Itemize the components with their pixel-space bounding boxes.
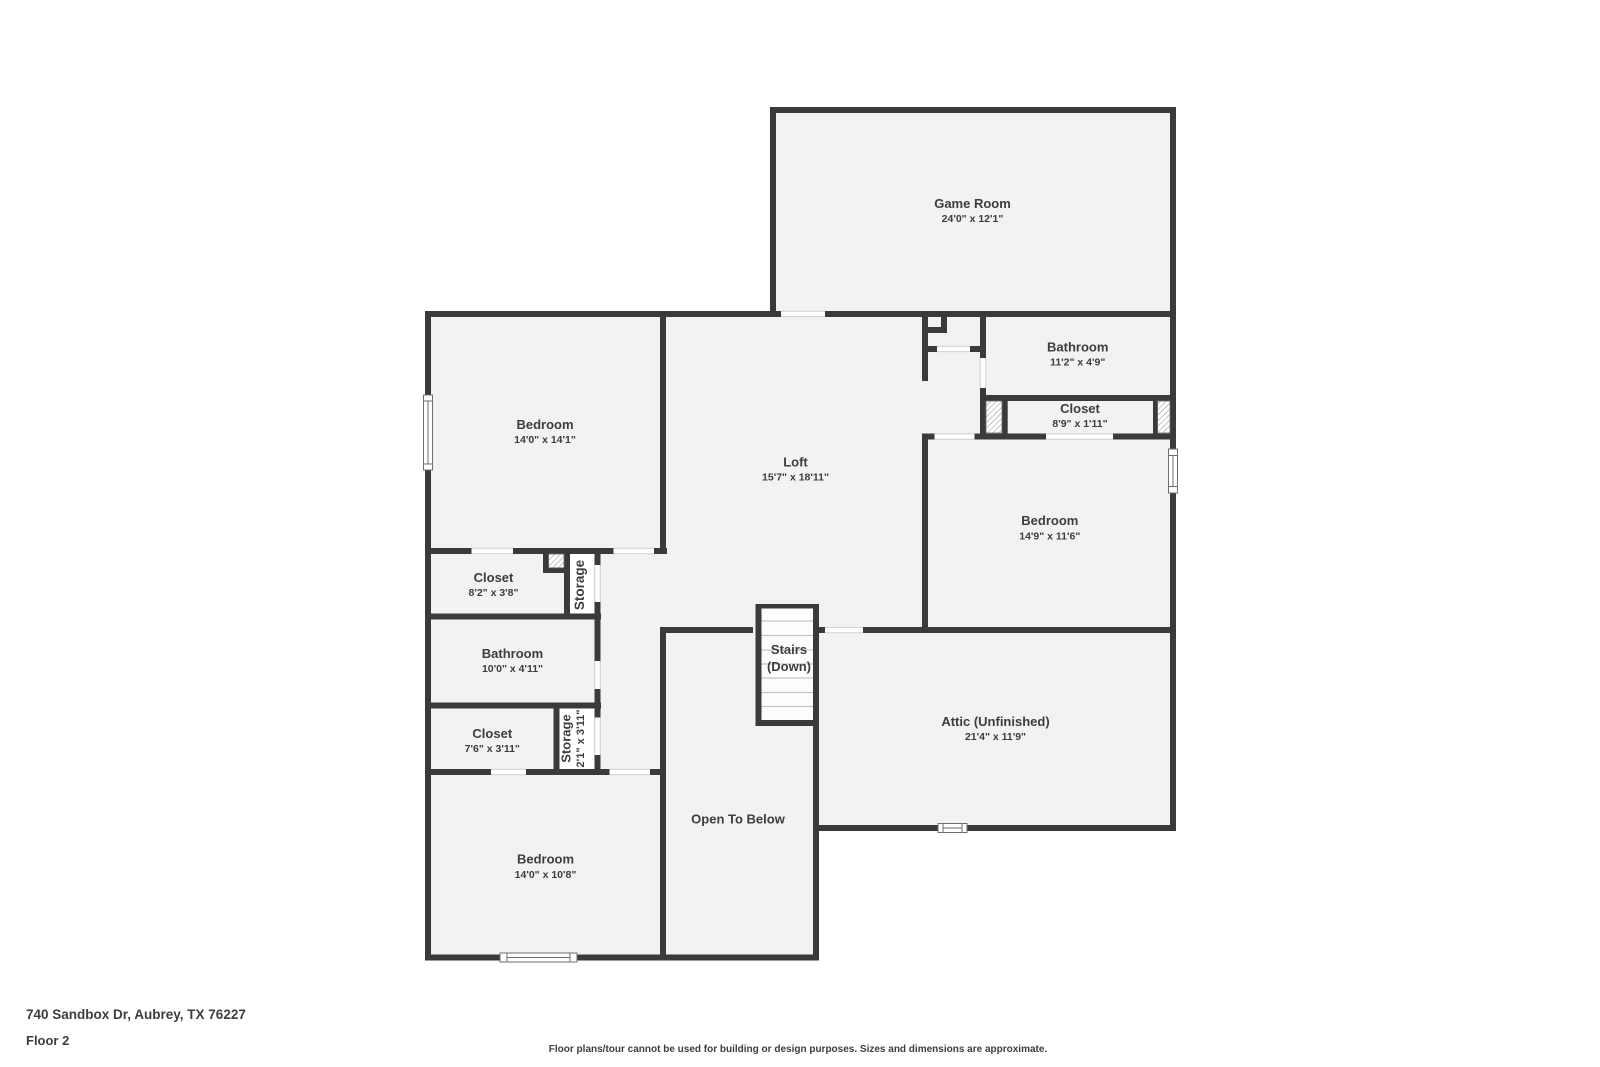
svg-text:8'2" x 3'8": 8'2" x 3'8" <box>469 587 519 599</box>
svg-text:10'0" x 4'11": 10'0" x 4'11" <box>482 663 543 675</box>
svg-text:(Down): (Down) <box>767 659 811 674</box>
svg-text:Closet: Closet <box>1060 401 1100 416</box>
svg-text:7'6" x 3'11": 7'6" x 3'11" <box>465 743 520 755</box>
svg-text:Closet: Closet <box>474 570 514 585</box>
svg-text:Storage: Storage <box>572 559 587 610</box>
svg-text:14'9" x 11'6": 14'9" x 11'6" <box>1019 531 1080 543</box>
svg-text:21'4" x 11'9": 21'4" x 11'9" <box>965 731 1026 743</box>
svg-text:24'0" x 12'1": 24'0" x 12'1" <box>942 213 1004 225</box>
svg-text:Closet: Closet <box>472 726 512 741</box>
svg-text:Game Room: Game Room <box>934 196 1011 211</box>
svg-text:Attic (Unfinished): Attic (Unfinished) <box>941 714 1049 729</box>
svg-text:14'0" x 14'1": 14'0" x 14'1" <box>514 434 576 446</box>
svg-text:Bedroom: Bedroom <box>1021 513 1078 528</box>
svg-text:Bathroom: Bathroom <box>1047 340 1108 355</box>
svg-text:14'0" x 10'8": 14'0" x 10'8" <box>515 869 577 881</box>
svg-text:2'1" x 3'11": 2'1" x 3'11" <box>575 710 587 768</box>
svg-text:Bathroom: Bathroom <box>482 646 543 661</box>
svg-text:Bedroom: Bedroom <box>516 417 573 432</box>
svg-text:15'7" x 18'11": 15'7" x 18'11" <box>762 472 829 484</box>
svg-text:11'2" x 4'9": 11'2" x 4'9" <box>1050 357 1105 369</box>
svg-text:Floor plans/tour cannot be use: Floor plans/tour cannot be used for buil… <box>549 1044 1048 1055</box>
svg-text:Stairs: Stairs <box>771 642 807 657</box>
svg-text:8'9" x 1'11": 8'9" x 1'11" <box>1052 418 1107 430</box>
svg-text:Floor 2: Floor 2 <box>26 1033 69 1048</box>
svg-text:Open To Below: Open To Below <box>691 812 786 827</box>
svg-text:Bedroom: Bedroom <box>517 852 574 867</box>
svg-text:740 Sandbox Dr, Aubrey, TX 762: 740 Sandbox Dr, Aubrey, TX 76227 <box>26 1007 246 1022</box>
svg-text:Loft: Loft <box>783 455 808 470</box>
svg-text:Storage: Storage <box>559 714 574 762</box>
